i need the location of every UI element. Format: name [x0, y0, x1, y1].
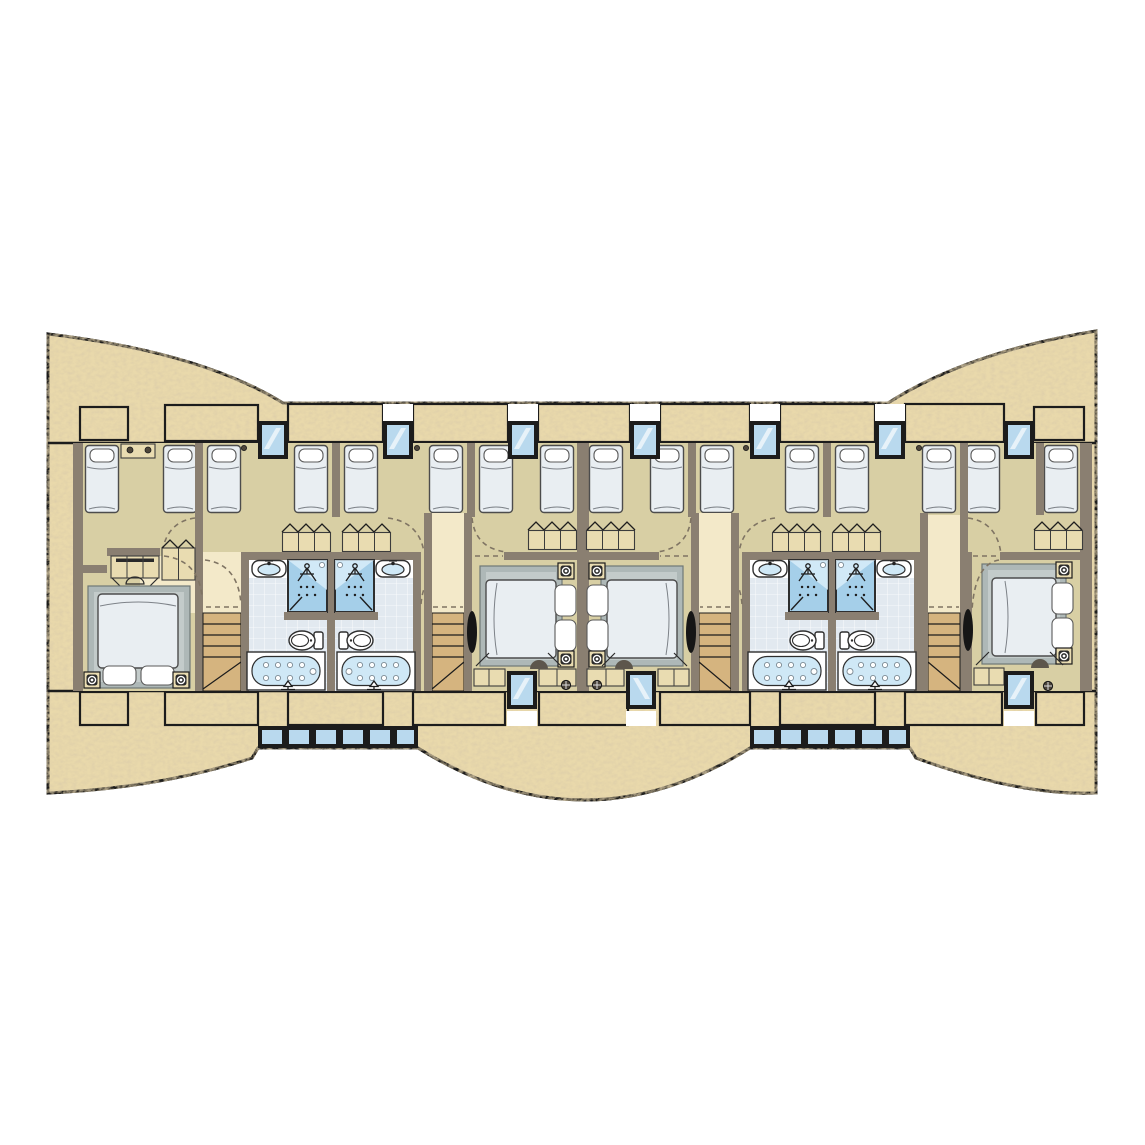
- floor-plan-drawing: [0, 0, 1145, 1145]
- exterior-wall-left: [73, 443, 83, 691]
- floor-plan-page: [0, 0, 1145, 1145]
- window-seat: [974, 668, 1004, 685]
- nightstand: [121, 444, 155, 458]
- party-wall-center: [577, 443, 589, 691]
- bay-window-strip-right: [750, 726, 910, 748]
- staircase: [928, 613, 960, 691]
- bottom-window: [1004, 671, 1034, 726]
- floor-drain: [1043, 681, 1052, 690]
- staircase: [203, 613, 241, 691]
- door-leaf: [963, 609, 973, 651]
- corridor-floor: [928, 515, 960, 613]
- exterior-wall-right: [1080, 443, 1092, 691]
- partition-wall: [1036, 443, 1044, 515]
- bay-window-strip-left: [258, 726, 418, 748]
